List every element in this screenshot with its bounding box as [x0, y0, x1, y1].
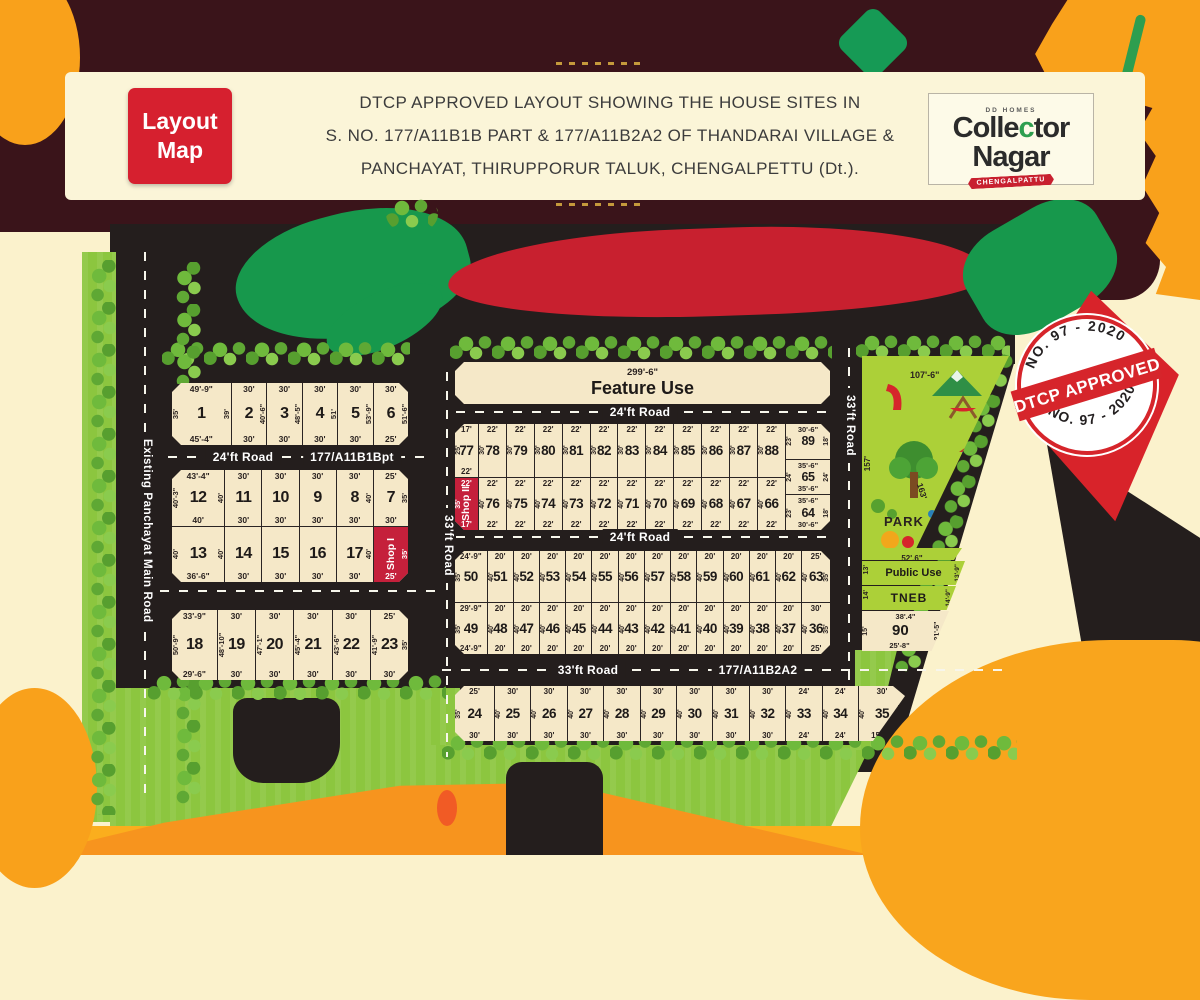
- dim-top: 30': [300, 471, 336, 481]
- plot-number: 23: [381, 636, 398, 654]
- dim-top: 20': [566, 604, 591, 613]
- shop-plot: Shop I25'35': [373, 527, 408, 583]
- road-label-33ft-bottom: 33'ft Road: [551, 662, 626, 678]
- plot-col-89-65-64: 8930'-6"23'18'6535'-6"35'-6"24'24'6435'-…: [785, 424, 830, 530]
- dim-top: 20': [645, 552, 670, 561]
- dim-right: 40'-6": [259, 404, 267, 424]
- plot-number: 16: [309, 545, 326, 563]
- dim-left: 40': [172, 549, 180, 559]
- plot-row-49-36: 4929'-9"24'-9"35'4820'20'40'4720'20'40'4…: [455, 602, 830, 654]
- plot-cell: 3130'30'40': [712, 686, 748, 741]
- dim-top: 30': [568, 687, 603, 696]
- dim-left: 45'-4": [294, 635, 302, 655]
- plot-cell: 4020'20'40': [696, 603, 722, 654]
- dim-top: 20': [724, 552, 749, 561]
- plot-number: 27: [578, 706, 592, 721]
- plot-cell: 5220'40': [513, 551, 539, 602]
- dim-top: 30': [218, 611, 255, 621]
- logo-name-accent: c: [1019, 112, 1034, 144]
- block-plots-1-6: 149'-9"45'-4"35'39'230'30'40'-6"330'30'4…: [172, 383, 408, 445]
- layout-map-page: { "header": { "badge_line1": "Layout", "…: [0, 0, 1200, 855]
- dim-left: 40': [540, 624, 547, 633]
- dim-right: 18': [823, 437, 830, 446]
- dim-left: 40': [507, 499, 514, 508]
- dim-top: 30': [232, 384, 266, 394]
- plot-number: 45: [572, 621, 586, 636]
- dim-left: 40': [677, 709, 684, 718]
- dim-top: 20': [514, 552, 539, 561]
- dim-bottom: 30': [294, 669, 331, 679]
- dim-bottom: 20': [645, 644, 670, 653]
- dim-bottom: 36'-6": [172, 571, 224, 581]
- plot-number: 11: [235, 489, 251, 507]
- plot-number: 15: [272, 545, 289, 563]
- dim-top: 22': [674, 425, 701, 434]
- plot-row-1-6: 149'-9"45'-4"35'39'230'30'40'-6"330'30'4…: [172, 383, 408, 445]
- plot-cell: 1930'30'48'-10": [217, 610, 255, 680]
- dim-bottom: 30': [641, 731, 676, 740]
- plot-number: 48: [493, 621, 507, 636]
- dim-left: 30': [758, 446, 765, 455]
- plot-cell: 7422'22'40': [534, 478, 562, 531]
- plot-cell: 8222'30': [590, 424, 618, 477]
- dim-right: 51': [330, 409, 338, 419]
- plot-number: Shop II: [460, 486, 472, 521]
- plot-number: 73: [569, 496, 583, 511]
- plot-cell: 5520'40': [591, 551, 617, 602]
- title-line3: PANCHAYAT, THIRUPPORUR TALUK, CHENGALPET…: [300, 152, 920, 185]
- dim-right: 18': [823, 508, 830, 517]
- block-plots-18-23: 1833'-9"29'-6"50'-9"1930'30'48'-10"2030'…: [172, 610, 408, 680]
- dim-right: 40': [365, 549, 373, 559]
- dim-left: 40': [802, 624, 809, 633]
- plot-number: 18: [186, 636, 203, 654]
- dim-bottom: 30': [262, 515, 298, 525]
- plot-cell: 2425'30'35': [455, 686, 494, 741]
- plot-cell: 2030'30'47'-1": [255, 610, 293, 680]
- plot-cell: 2530'30'40': [494, 686, 530, 741]
- plot-cell: 830'30'40': [336, 470, 373, 526]
- dim-top: 20': [724, 604, 749, 613]
- dim-left: 40': [592, 624, 599, 633]
- plot-number: 42: [650, 621, 664, 636]
- plot-number: 17: [346, 545, 363, 563]
- dim-top: 22': [702, 479, 729, 488]
- plot-cell: 3230'30'40': [749, 686, 785, 741]
- dim-bottom: 30': [750, 731, 785, 740]
- plot-number: 55: [598, 569, 612, 584]
- dim-left: 40': [776, 572, 783, 581]
- dim-bottom: 22': [758, 520, 785, 529]
- plot-number: 86: [709, 443, 723, 458]
- dim-top: 22': [618, 425, 645, 434]
- dim-bottom: 24': [823, 731, 858, 740]
- dim-bottom: 22': [591, 520, 618, 529]
- plot-cell: 6220'40': [775, 551, 801, 602]
- trees-left-road-inner-top: [174, 262, 204, 384]
- dim-bottom: 22': [646, 520, 673, 529]
- dim-bottom: 30': [267, 434, 301, 444]
- dim-bottom: 30': [225, 515, 261, 525]
- dim-left: 40': [750, 572, 757, 581]
- dim-top: 20': [540, 604, 565, 613]
- plot-cell: 8722'30': [729, 424, 757, 477]
- plot-cell: 2230'30'43'-6": [332, 610, 370, 680]
- dim-top: 20': [671, 552, 696, 561]
- dim-left: 40': [823, 709, 830, 718]
- plot-cell: 230'30'40'-6": [231, 383, 266, 445]
- dim-left: 30': [618, 446, 625, 455]
- plot-cell: 6020'40': [723, 551, 749, 602]
- plot-cell: 5920'40': [696, 551, 722, 602]
- plot-cell: 8322'30': [617, 424, 645, 477]
- dim-bottom: 22': [674, 520, 701, 529]
- plot-number: 61: [755, 569, 769, 584]
- dim-top: 30': [531, 687, 566, 696]
- plot-cell: 3030'30'40': [676, 686, 712, 741]
- block-plots-7-17-shop1: 1243'-4"40'40'-3"40'1130'30'1030'30'930'…: [172, 470, 408, 582]
- trees-left-road-outer: [88, 260, 120, 815]
- plot-90-number: 90: [892, 622, 909, 639]
- dim-top: 22': [646, 425, 673, 434]
- plot-number: 40: [703, 621, 717, 636]
- dim-bottom: 30': [338, 434, 372, 444]
- dim-bottom: 30': [337, 571, 373, 581]
- plot-cell: 3720'20'40': [775, 603, 801, 654]
- plot-90-dim-bottom: 25'-8": [850, 641, 949, 650]
- plot-number: 71: [625, 496, 639, 511]
- dim-bottom: 20': [776, 644, 801, 653]
- plot-number: 79: [513, 443, 527, 458]
- dim-left: 40': [786, 709, 793, 718]
- dim-top: 20': [540, 552, 565, 561]
- black-bush-silhouette-left: [233, 698, 340, 783]
- feature-use-width: 299'-6": [627, 367, 658, 378]
- plot-number: 33: [797, 706, 811, 721]
- dim-top: 22': [507, 425, 534, 434]
- plot-number: 32: [760, 706, 774, 721]
- road-label-existing-panchayat: Existing Panchayat Main Road: [140, 432, 154, 630]
- plot-cell: 3920'20'40': [723, 603, 749, 654]
- plot-number: 2: [245, 405, 253, 423]
- dim-left: 40': [758, 499, 765, 508]
- plot-number: 34: [833, 706, 847, 721]
- red-orange-patch: [437, 790, 457, 826]
- dim-top: 20': [750, 552, 775, 561]
- dim-left: 35': [172, 409, 180, 419]
- dim-right: 35': [401, 493, 409, 503]
- dim-left: 40': [645, 624, 652, 633]
- dim-top: 20': [592, 552, 617, 561]
- banner-bush: [386, 194, 438, 234]
- trees-above-feature: [450, 334, 832, 362]
- plot-90: 38'.4" 90 25'-8" 15' 21'-5": [862, 611, 949, 651]
- dim-left: 30': [535, 446, 542, 455]
- plot-cell: 6722'22'40': [729, 478, 757, 531]
- dim-top: 30': [713, 687, 748, 696]
- dim-left: 41'-9": [371, 635, 379, 655]
- plot-number: 3: [280, 405, 288, 423]
- dim-left: 40': [604, 709, 611, 718]
- plot-cell: 630'25'51'-6": [373, 383, 408, 445]
- dim-bottom: 30': [568, 731, 603, 740]
- dim-top: 30': [338, 384, 372, 394]
- dim-top: 22': [674, 479, 701, 488]
- plot-number: 1: [197, 405, 205, 423]
- plot-cell: 7822'30': [478, 424, 506, 477]
- dim-top: 22': [507, 479, 534, 488]
- plot-cell: 1530': [261, 527, 298, 583]
- plot-number: 6: [387, 405, 395, 423]
- dim-bottom: 30': [604, 731, 639, 740]
- plot-number: 22: [343, 636, 360, 654]
- plot-number: 4: [316, 405, 324, 423]
- plot-number: 60: [729, 569, 743, 584]
- plot-cell: 7622'22'40': [478, 478, 506, 531]
- plot-cell: 4620'20'40': [539, 603, 565, 654]
- dim-top: 20': [776, 604, 801, 613]
- plot-cell: 7522'22'40': [506, 478, 534, 531]
- dim-top: 30': [256, 611, 293, 621]
- dim-left: 40': [540, 572, 547, 581]
- dim-left: 40': [713, 709, 720, 718]
- plot-cell: 2930'30'40': [640, 686, 676, 741]
- plot-number: 30: [688, 706, 702, 721]
- dim-right: 48'-5": [294, 404, 302, 424]
- dim-left: 40': [488, 572, 495, 581]
- title-line1: DTCP APPROVED LAYOUT SHOWING THE HOUSE S…: [300, 86, 920, 119]
- center-rows: 7717'22'25'7822'30'7922'30'8022'30'8122'…: [455, 424, 785, 530]
- dim-top: 20': [776, 552, 801, 561]
- logo-name-part2: tor: [1034, 112, 1070, 144]
- plot-number: 80: [541, 443, 555, 458]
- plot-cell: 8122'30': [562, 424, 590, 477]
- dim-left: 40': [619, 624, 626, 633]
- plot-number: 62: [782, 569, 796, 584]
- dim-left: 23': [786, 437, 793, 446]
- dim-top: 30': [641, 687, 676, 696]
- plot-cell: 330'30'48'-5": [266, 383, 301, 445]
- plot-cell: 930'30': [299, 470, 336, 526]
- gold-dots-top: [556, 62, 644, 65]
- plot-cell: 1630': [299, 527, 336, 583]
- dim-left: 40': [514, 572, 521, 581]
- dim-right: 40': [365, 493, 373, 503]
- dim-left: 35': [455, 572, 462, 581]
- road-label-24ft-left: 24'ft Road: [206, 449, 281, 465]
- dim-left: 40': [697, 624, 704, 633]
- plot-cell: 7122'22'40': [617, 478, 645, 531]
- park-dim-left: 157': [864, 456, 872, 471]
- dim-left: 50'-9": [172, 635, 180, 655]
- dim-bottom: 45'-4": [172, 434, 231, 444]
- dim-bottom: 20': [619, 644, 644, 653]
- plot-cell: 8822'30': [757, 424, 785, 477]
- dim-left: 40'-3": [172, 488, 180, 508]
- dim-bottom: 20': [592, 644, 617, 653]
- dim-left: 40': [750, 624, 757, 633]
- dim-bottom: 22': [507, 520, 534, 529]
- page-title: DTCP APPROVED LAYOUT SHOWING THE HOUSE S…: [300, 86, 920, 185]
- dim-bottom: 35'-6": [786, 484, 830, 493]
- dim-top: 20': [488, 604, 513, 613]
- plot-number: 38: [755, 621, 769, 636]
- dim-bottom: 20': [724, 644, 749, 653]
- plot-cell: 5420'40': [565, 551, 591, 602]
- dim-right: 35': [401, 640, 409, 650]
- dim-left: 40': [535, 499, 542, 508]
- dim-left: 30': [730, 446, 737, 455]
- dim-right: 35': [823, 572, 830, 581]
- plot-cell: 2730'30'40': [567, 686, 603, 741]
- plot-cell: 725'30'35': [373, 470, 408, 526]
- dim-left: 43'-6": [333, 635, 341, 655]
- plot-number: 56: [624, 569, 638, 584]
- dim-top: 20': [671, 604, 696, 613]
- plot-90-dim-right: 21'-5": [934, 622, 941, 641]
- dim-left: 40': [671, 624, 678, 633]
- dim-bottom: 30': [713, 731, 748, 740]
- feature-use-label: Feature Use: [591, 378, 694, 399]
- badge-line2: Map: [157, 136, 203, 165]
- plot-number: 47: [519, 621, 533, 636]
- plot-number: 7: [387, 489, 395, 507]
- dim-top: 30': [604, 687, 639, 696]
- plot-cell: 1430': [224, 527, 261, 583]
- dim-left: 35': [455, 709, 462, 718]
- dim-bottom: 20': [488, 644, 513, 653]
- park-label: PARK: [884, 514, 924, 529]
- plot-cell: 5720'40': [644, 551, 670, 602]
- dim-top: 22': [563, 425, 590, 434]
- dim-top: 20': [619, 604, 644, 613]
- dim-top: 43'-4": [172, 471, 224, 481]
- park-dim-top: 107'-6": [910, 370, 939, 380]
- dim-left: 40': [592, 572, 599, 581]
- dim-left: 40': [802, 572, 809, 581]
- plot-number: 78: [485, 443, 499, 458]
- dim-bottom: 22': [702, 520, 729, 529]
- dim-bottom: 20': [671, 644, 696, 653]
- plot-row-76-66-shop2: Shop II22'17'35'7622'22'40'7522'22'40'74…: [455, 477, 785, 531]
- plot-number: 44: [598, 621, 612, 636]
- plot-number: 19: [228, 636, 245, 654]
- dim-left: 47'-1": [256, 635, 264, 655]
- dim-left: 40': [641, 709, 648, 718]
- plot-cell: 6325'40'35': [801, 551, 830, 602]
- dim-right: 35': [823, 624, 830, 633]
- dim-top: 30': [495, 687, 530, 696]
- plot-cell: 3630'25'40'35': [801, 603, 830, 654]
- dim-left: 40': [697, 572, 704, 581]
- road-label-24ft-center-top: 24'ft Road: [603, 404, 678, 420]
- plot-cell: 6922'22'40': [673, 478, 701, 531]
- dim-top: 22': [591, 479, 618, 488]
- dim-top: 20': [592, 604, 617, 613]
- dim-bottom: 30': [333, 669, 370, 679]
- plot-cell: 4929'-9"24'-9"35': [455, 603, 487, 654]
- plot-number: 12: [190, 489, 207, 507]
- plot-number: 57: [650, 569, 664, 584]
- plot-90-dim-top: 38'.4": [862, 612, 949, 621]
- dim-bottom: 22': [563, 520, 590, 529]
- dim-top: 20': [488, 552, 513, 561]
- plot-cell: 2325'30'41'-9"35': [370, 610, 408, 680]
- plot-row-12-7: 1243'-4"40'40'-3"40'1130'30'1030'30'930'…: [172, 470, 408, 526]
- plot-cell: 3424'24'40': [822, 686, 858, 741]
- dim-left: 40': [702, 499, 709, 508]
- plot-cell: 4720'20'40': [513, 603, 539, 654]
- plot-cell: 6120'40': [749, 551, 775, 602]
- plot-number: 43: [624, 621, 638, 636]
- dim-top: 49'-9": [172, 384, 231, 394]
- plot-number: 63: [809, 569, 823, 584]
- dim-bottom: 30': [303, 434, 337, 444]
- plot-cell: 430'30'51': [302, 383, 337, 445]
- plot-cell: 6622'22'40': [757, 478, 785, 531]
- plot-number: 82: [597, 443, 611, 458]
- dim-top: 20': [619, 552, 644, 561]
- plot-number: 9: [313, 489, 321, 507]
- dim-bottom: 30': [337, 515, 373, 525]
- dim-bottom: 30': [218, 669, 255, 679]
- plot-number: 20: [266, 636, 283, 654]
- feature-use-strip: 299'-6" Feature Use: [455, 362, 830, 404]
- dim-bottom: 30': [300, 571, 336, 581]
- plot-number: 72: [597, 496, 611, 511]
- plot-cell: 1833'-9"29'-6"50'-9": [172, 610, 217, 680]
- dim-left: 40': [724, 572, 731, 581]
- plot-number: 36: [809, 621, 823, 636]
- tneb-dim-left: 14': [863, 590, 870, 599]
- plot-row-13-17-shop1: 1336'-6"40'40'1430'1530'1630'1730'40'Sho…: [172, 526, 408, 583]
- dim-left: 40': [568, 709, 575, 718]
- dim-top: 33'-9": [172, 611, 217, 621]
- plot-row-50-63: 5024'-9"35'5120'40'5220'40'5320'40'5420'…: [455, 551, 830, 602]
- tneb-label: TNEB: [891, 591, 928, 605]
- plot-cell: 4420'20'40': [591, 603, 617, 654]
- plot-number: 25: [506, 706, 520, 721]
- plot-number: 85: [681, 443, 695, 458]
- dim-top: 22': [535, 479, 562, 488]
- dim-top: 30': [750, 687, 785, 696]
- dim-bottom: 30': [256, 669, 293, 679]
- plot-cell: 8622'30': [701, 424, 729, 477]
- dim-top: 30': [262, 471, 298, 481]
- logo-name-line2: Nagar: [972, 143, 1049, 172]
- logo-name-line1: Collector: [953, 114, 1070, 143]
- survey-label-a11b2a2: 177/A11B2A2: [712, 662, 805, 678]
- dim-top: 20': [697, 604, 722, 613]
- plot-number: 35: [875, 706, 889, 721]
- dim-left: 40': [671, 572, 678, 581]
- dim-left: 40': [776, 624, 783, 633]
- plot-cell: 1130'30': [224, 470, 261, 526]
- dim-top: 20': [750, 604, 775, 613]
- dim-top: 22': [618, 479, 645, 488]
- dim-left: 40': [724, 624, 731, 633]
- title-line2: S. NO. 177/A11B1B PART & 177/A11B2A2 OF …: [300, 119, 920, 152]
- dim-left: 35': [455, 624, 462, 633]
- public-use-strip: Public Use 13' 13'-9": [862, 561, 965, 585]
- road-label-33ft-center: 33'ft Road: [441, 508, 455, 583]
- dim-left: 30': [702, 446, 709, 455]
- dim-left: 40': [563, 499, 570, 508]
- plot-number: 74: [541, 496, 555, 511]
- plot-cell: 2130'30'45'-4": [293, 610, 331, 680]
- dim-top: 22': [563, 479, 590, 488]
- dim-bottom: 30': [374, 515, 408, 525]
